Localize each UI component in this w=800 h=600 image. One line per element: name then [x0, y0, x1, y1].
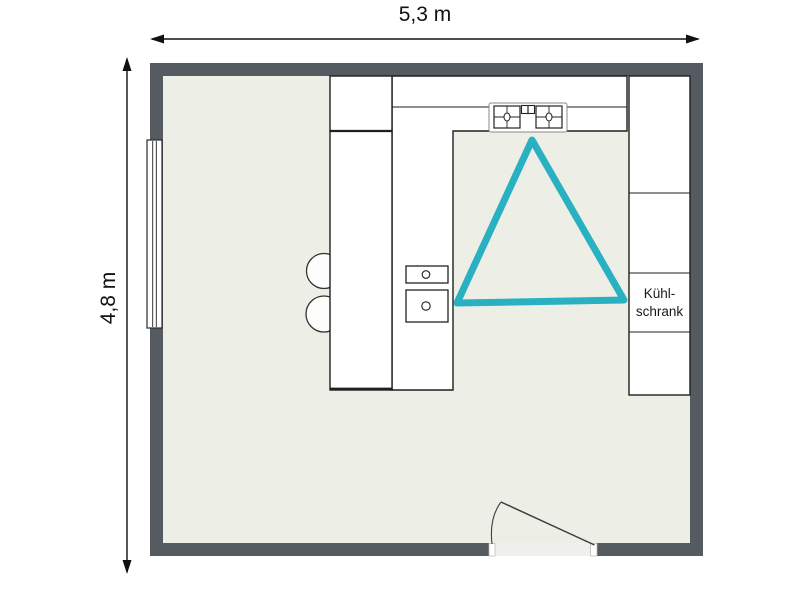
tall-cabinet-column	[629, 76, 690, 395]
height-dimension-label: 4,8 m	[97, 267, 121, 329]
refrigerator-label-line1: Kühl-	[644, 285, 676, 303]
sink-drain-2	[422, 302, 430, 310]
refrigerator-label-line2: schrank	[636, 303, 683, 321]
sink	[406, 266, 448, 322]
width-dimension-arrow	[150, 35, 700, 44]
refrigerator-label: Kühl- schrank	[629, 273, 690, 332]
sink-drain-1	[422, 271, 430, 279]
height-dimension-arrow	[123, 57, 132, 574]
island-counter	[330, 131, 392, 390]
door-opening	[489, 543, 597, 556]
upper-left-cabinet	[330, 76, 392, 131]
floor-plan-canvas: 5,3 m 4,8 m Kühl- schrank	[0, 0, 800, 600]
width-dimension-label: 5,3 m	[150, 3, 700, 27]
arrow-right-head-icon	[686, 35, 700, 44]
stove	[489, 103, 567, 132]
window	[147, 140, 162, 328]
arrow-left-head-icon	[150, 35, 164, 44]
door-jamb-left	[489, 544, 495, 557]
arrow-up-head-icon	[123, 57, 132, 71]
arrow-down-head-icon	[123, 560, 132, 574]
